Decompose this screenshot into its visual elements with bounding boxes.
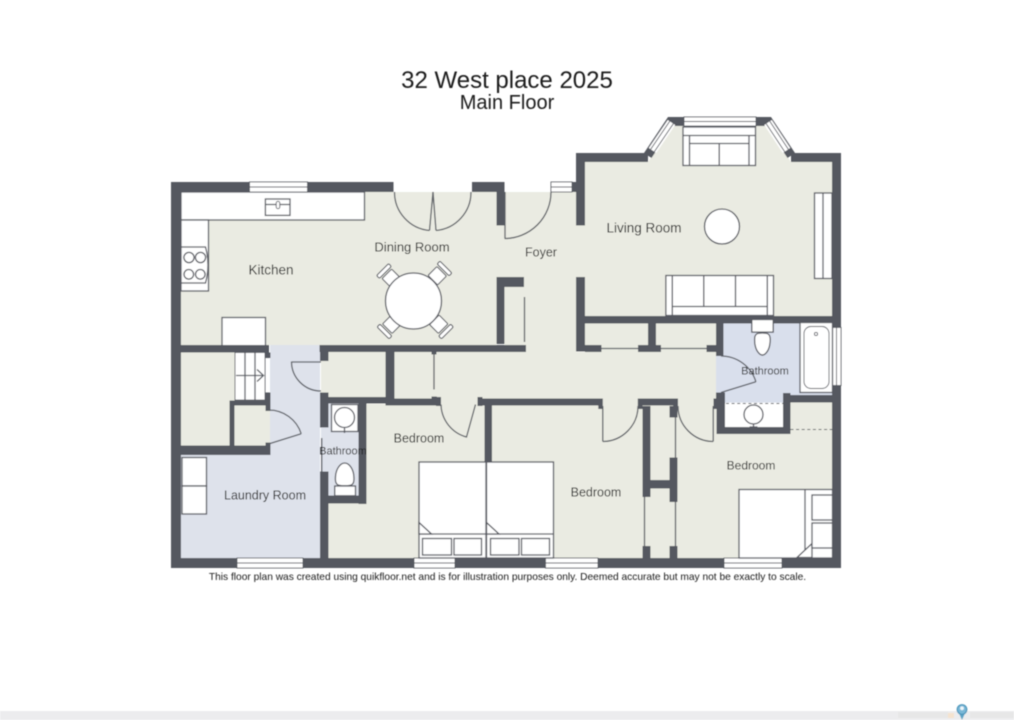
svg-text:Dining Room: Dining Room — [374, 240, 449, 255]
svg-text:32 West place 2025: 32 West place 2025 — [401, 67, 613, 94]
svg-text:Bedroom: Bedroom — [394, 432, 445, 446]
svg-text:Bathroom: Bathroom — [741, 366, 789, 378]
svg-text:Main Floor: Main Floor — [460, 92, 555, 114]
svg-text:Kitchen: Kitchen — [248, 263, 293, 278]
svg-text:Living Room: Living Room — [606, 221, 681, 236]
svg-text:This floor plan was created us: This floor plan was created using quikfl… — [209, 572, 806, 583]
svg-text:Laundry Room: Laundry Room — [224, 489, 306, 503]
svg-text:Bedroom: Bedroom — [571, 486, 622, 500]
svg-text:Bathroom: Bathroom — [319, 446, 367, 458]
svg-text:Bedroom: Bedroom — [727, 459, 776, 473]
svg-text:Foyer: Foyer — [525, 246, 557, 260]
